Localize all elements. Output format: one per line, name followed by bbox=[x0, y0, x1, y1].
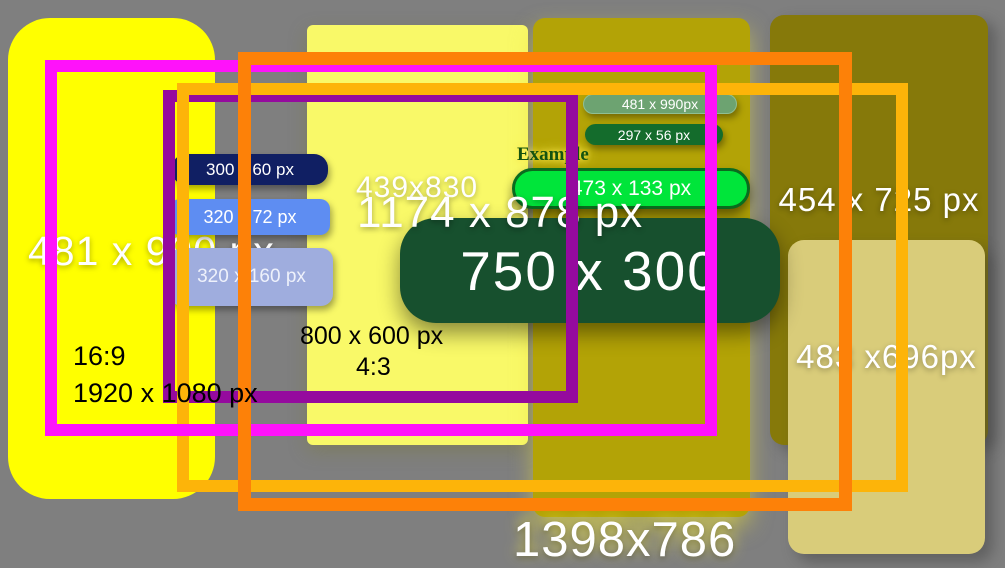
frame-orange-outline bbox=[238, 52, 852, 511]
annotation-16-9: 16:9 bbox=[73, 341, 126, 372]
label-1398x786: 1398x786 bbox=[513, 512, 736, 568]
annotation-1920x1080: 1920 x 1080 px bbox=[73, 378, 258, 409]
annotation-800x600: 800 x 600 px bbox=[300, 322, 443, 351]
annotation-4-3: 4:3 bbox=[356, 353, 391, 382]
